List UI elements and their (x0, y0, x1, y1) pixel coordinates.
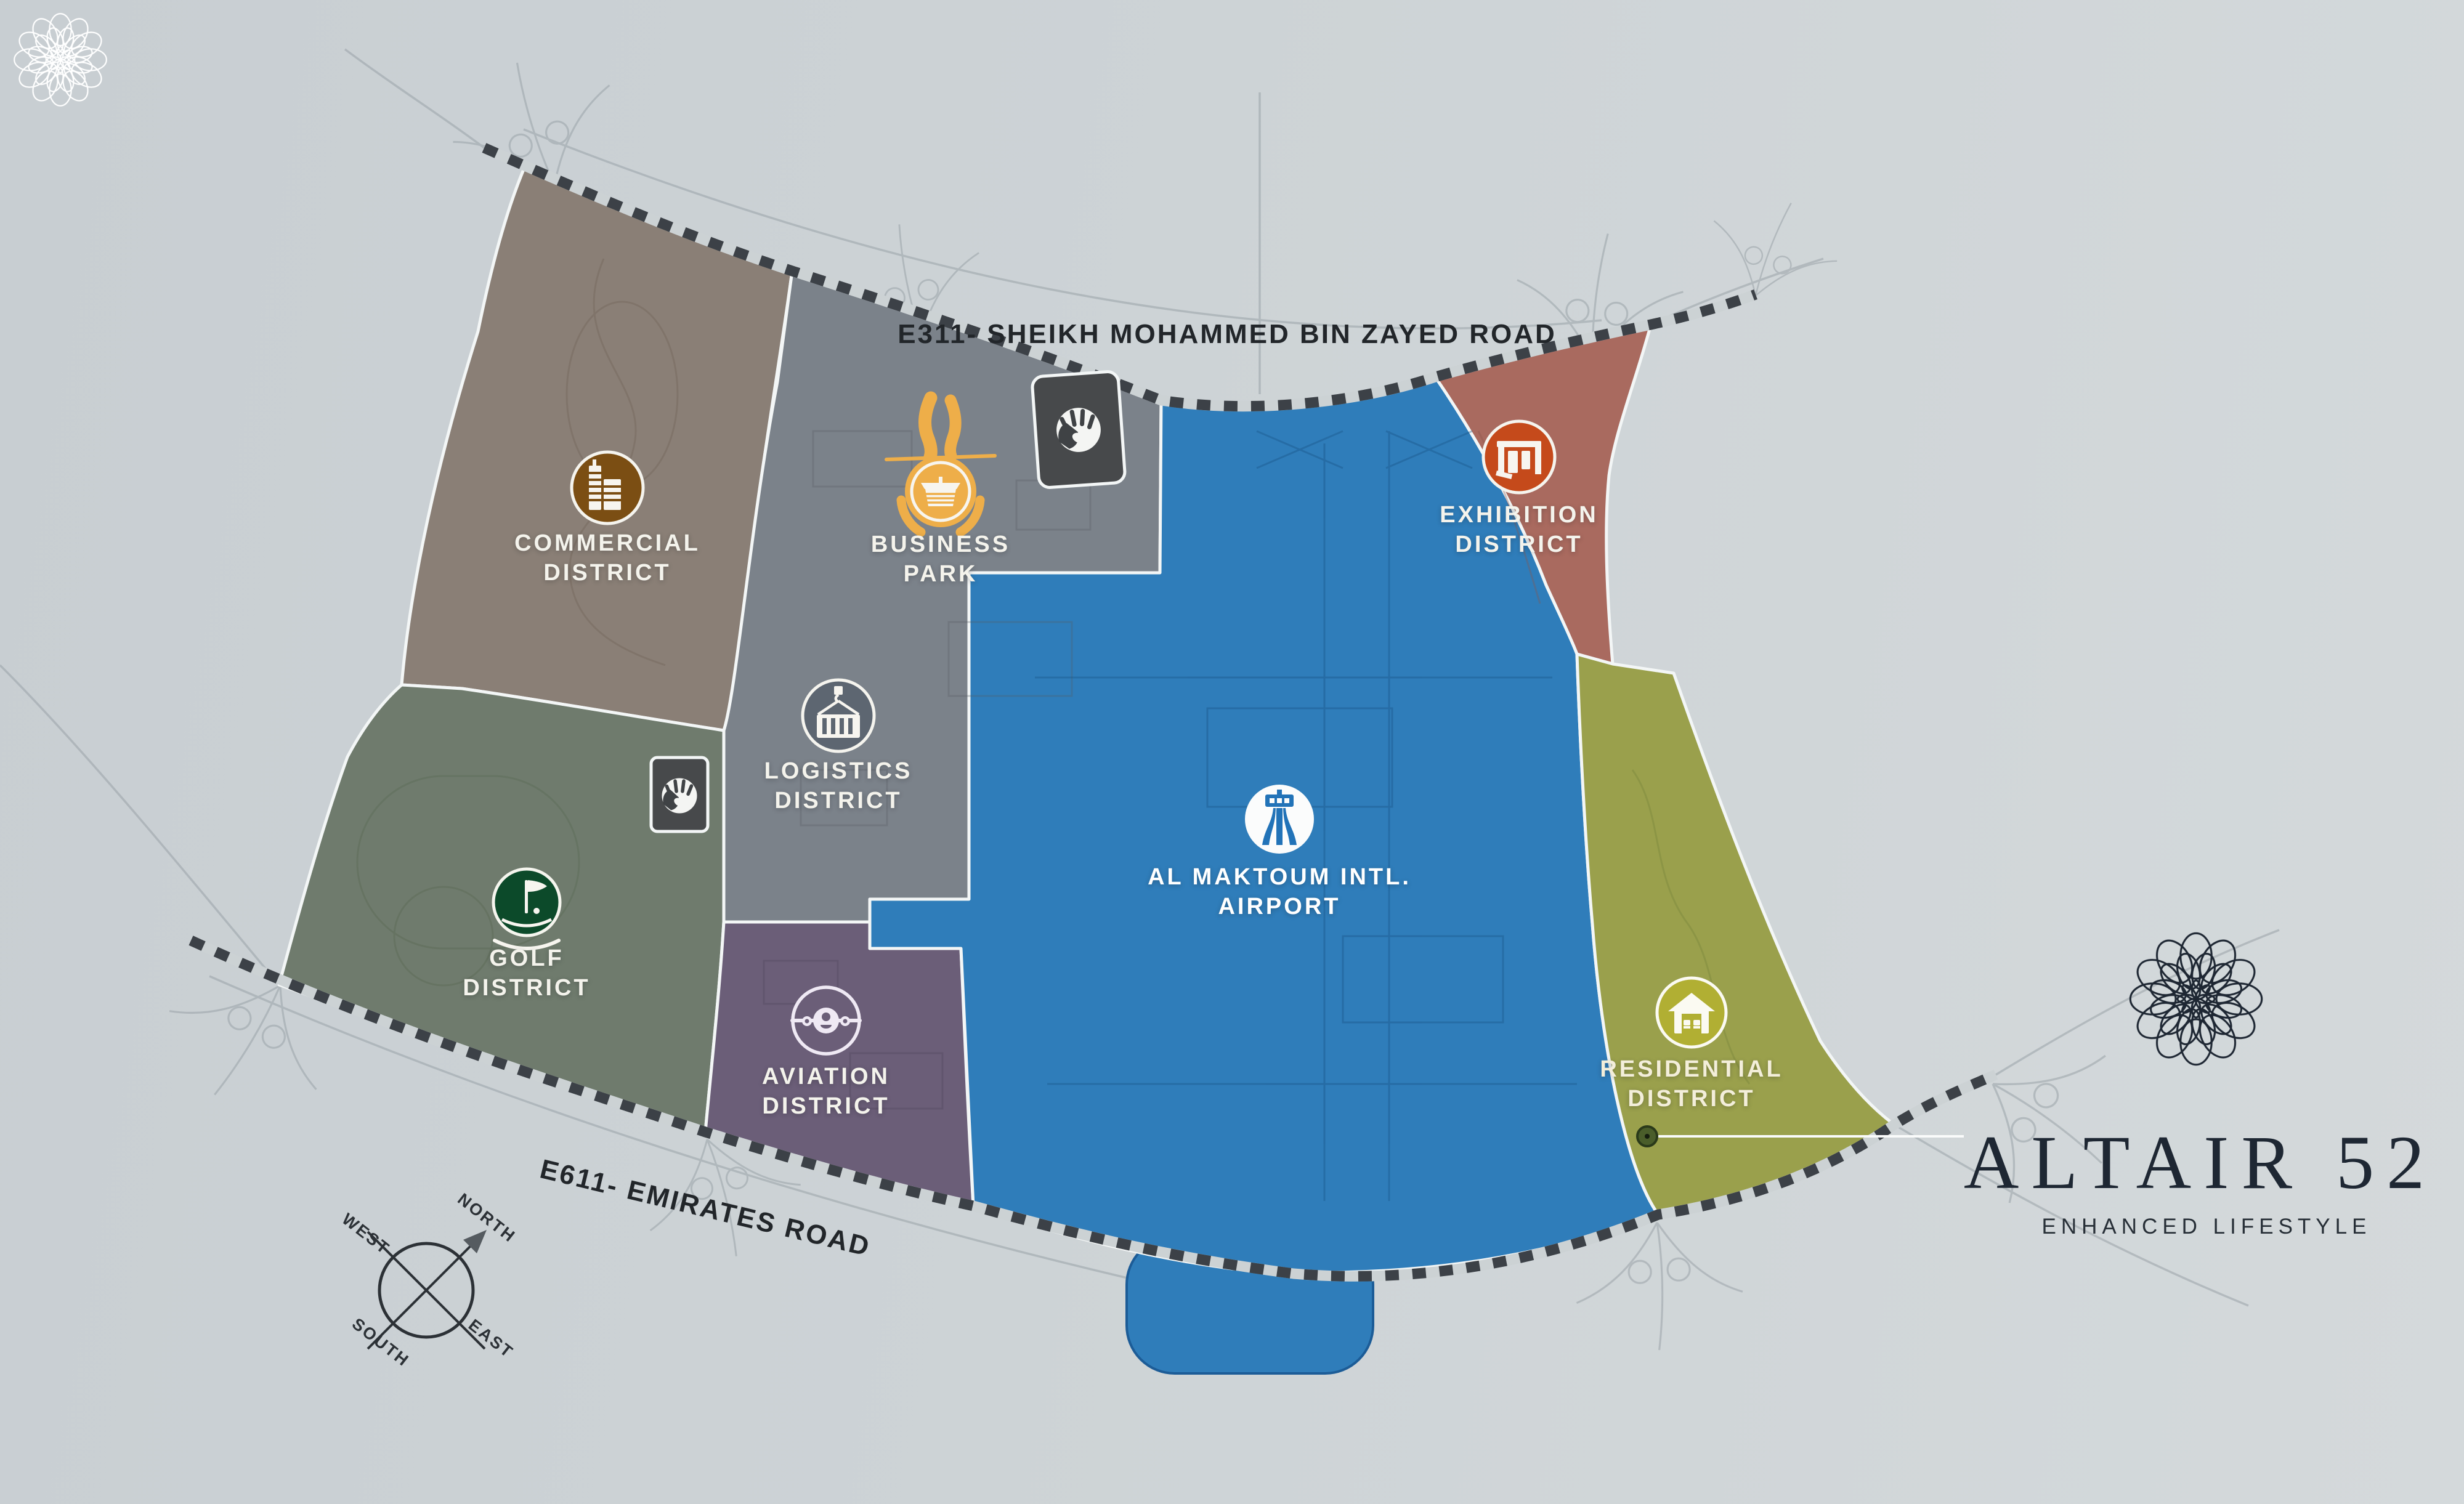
buildings-icon (572, 452, 643, 524)
district-label-line: AVIATION (762, 1062, 890, 1091)
district-label-line: DISTRICT (764, 786, 913, 815)
district-label-line: DISTRICT (1440, 530, 1598, 559)
masterplan-map: E311- SHEIKH MOHAMMED BIN ZAYED ROAD E61… (0, 0, 2464, 1504)
road-label-e311: E311- SHEIKH MOHAMMED BIN ZAYED ROAD (898, 319, 1557, 350)
district-label-line: PARK (871, 559, 1010, 589)
brand-title: ALTAIR 52 (1964, 1119, 2437, 1207)
district-label-line: DISTRICT (514, 558, 700, 588)
brand-rosette-icon (2130, 933, 2261, 1064)
exhibition-stand-icon (1483, 421, 1555, 493)
district-label-line: LOGISTICS (764, 756, 913, 786)
watermark-rosette-icon (14, 14, 107, 106)
map-canvas (0, 0, 2464, 1504)
district-label-commercial: COMMERCIAL DISTRICT (514, 528, 700, 588)
control-tower-icon (1245, 785, 1314, 854)
district-label-line: GOLF (463, 944, 590, 973)
district-label-line: AL MAKTOUM INTL. (1148, 862, 1411, 892)
district-label-exhibition: EXHIBITION DISTRICT (1440, 500, 1598, 559)
district-label-line: DISTRICT (1600, 1084, 1783, 1114)
hands-icon (662, 778, 697, 813)
developer-plate-top (1032, 371, 1125, 488)
brand-tagline: ENHANCED LIFESTYLE (2042, 1215, 2372, 1239)
district-label-line: RESIDENTIAL (1600, 1054, 1783, 1084)
district-label-line: DISTRICT (463, 973, 590, 1003)
district-label-business-park: BUSINESS PARK (871, 530, 1010, 589)
district-label-line: AIRPORT (1148, 892, 1411, 921)
district-label-golf: GOLF DISTRICT (463, 944, 590, 1003)
house-icon (1657, 978, 1726, 1047)
crane-container-icon (803, 680, 874, 751)
district-label-airport: AL MAKTOUM INTL. AIRPORT (1148, 862, 1411, 921)
district-label-line: EXHIBITION (1440, 500, 1598, 530)
district-label-line: BUSINESS (871, 530, 1010, 559)
district-label-residential: RESIDENTIAL DISTRICT (1600, 1054, 1783, 1114)
district-label-logistics: LOGISTICS DISTRICT (764, 756, 913, 815)
district-residential-region (1577, 654, 1894, 1215)
district-label-aviation: AVIATION DISTRICT (762, 1062, 890, 1121)
airplane-icon (790, 987, 862, 1054)
developer-plate-side (651, 758, 708, 831)
district-label-line: DISTRICT (762, 1091, 890, 1121)
district-label-line: COMMERCIAL (514, 528, 700, 558)
